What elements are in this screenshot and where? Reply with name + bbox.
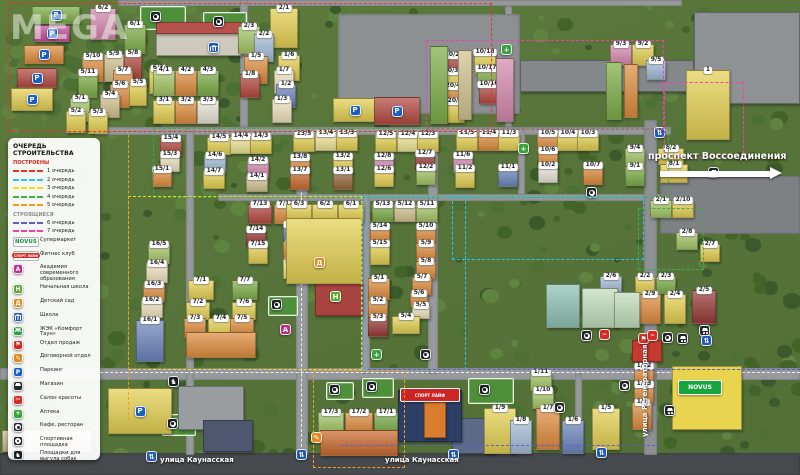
sportlife-sign: СПОРТ ЛАЙФ — [400, 388, 460, 402]
legend-amenity-label: Магазин — [40, 381, 63, 388]
building-label: 11/2 — [456, 165, 475, 172]
tree — [404, 175, 411, 181]
building[interactable]: 1/7 — [536, 408, 560, 450]
parking-icon: P — [350, 105, 361, 116]
building[interactable]: 9/5 — [646, 60, 666, 80]
phase-line-swatch — [13, 204, 43, 206]
building[interactable] — [496, 58, 514, 122]
tree — [598, 382, 606, 389]
tree — [515, 351, 529, 363]
building[interactable]: 4/3 — [197, 70, 219, 96]
tree — [783, 293, 800, 308]
building[interactable]: 2/10 — [672, 200, 694, 218]
building-label: 11/4 — [480, 130, 499, 137]
legend-amenity-icon-wrap — [13, 381, 40, 391]
legend-amenity-row: Магазин — [13, 381, 96, 393]
tree — [614, 258, 620, 263]
cafe-icon — [581, 330, 592, 341]
building[interactable]: 10/3 — [577, 133, 599, 151]
building[interactable] — [286, 218, 362, 284]
building[interactable]: 2/1 — [650, 200, 672, 218]
building-label: 1/9 — [493, 405, 508, 412]
legend-amenity-row: PПаркинг — [13, 367, 96, 379]
legend-amenity-label: Договорной отдел — [40, 353, 91, 360]
legend-phases-built: 1 очередь2 очередь3 очередь4 очередь5 оч… — [13, 167, 96, 210]
tree — [110, 349, 125, 361]
legend-title: ОЧЕРЕДЬ СТРОИТЕЛЬСТВА — [13, 143, 96, 157]
building[interactable]: 14/1 — [246, 176, 268, 192]
building-label: 5/5 — [131, 79, 146, 86]
tree — [791, 383, 800, 395]
building[interactable]: 2/8 — [676, 232, 698, 250]
building-label: 1/3 — [275, 96, 290, 103]
cafe-icon — [619, 380, 630, 391]
building-label: 16/3 — [145, 281, 164, 288]
building[interactable]: 2/1 — [270, 8, 298, 48]
entrance-icon: ⇅ — [146, 451, 157, 462]
tree — [733, 353, 743, 362]
tree — [280, 139, 288, 146]
legend-phase-row: 7 очередь — [13, 227, 96, 236]
legend-amenity-row: Кафе, ресторан — [13, 422, 96, 434]
building-label: 4/1 — [157, 67, 172, 74]
legend-amenity-icon-wrap: ♞ — [13, 450, 40, 460]
building-label: 13/8 — [291, 154, 310, 161]
tree — [544, 181, 559, 194]
building[interactable] — [320, 430, 398, 456]
tree — [579, 272, 592, 283]
building[interactable]: 5/4 — [392, 316, 420, 334]
building[interactable]: 5/3 — [368, 317, 388, 337]
building-label: 5/2 — [371, 297, 386, 304]
entrance-icon: ⇅ — [701, 335, 712, 346]
tree — [143, 210, 152, 218]
legend-amenity-row: ♞Площадки для выгула собак — [13, 450, 96, 460]
building-label: 9/5 — [649, 57, 664, 64]
building-label: 2/6 — [604, 273, 619, 280]
building-label: 7/2 — [191, 299, 206, 306]
tree — [682, 26, 690, 33]
building-label: 3/3 — [201, 97, 216, 104]
tree — [672, 351, 680, 358]
building[interactable]: 2/7 — [700, 244, 720, 262]
legend-phase-row: 1 очередь — [13, 167, 96, 176]
tree — [511, 340, 518, 346]
building-label: 1 — [704, 67, 712, 74]
legend-amenity-row: ✎Договорной отдел — [13, 353, 96, 365]
soccer-icon — [271, 299, 282, 310]
building[interactable] — [546, 284, 580, 328]
tree — [478, 211, 485, 217]
building-label: 2/10 — [674, 197, 693, 204]
building-label: 7/15 — [249, 241, 268, 248]
legend-amenity-icon-wrap: ✎ — [13, 353, 40, 363]
legend-phase-row: 2 очередь — [13, 176, 96, 185]
building[interactable]: 7/15 — [248, 244, 268, 264]
building-label: 5/7 — [415, 274, 430, 281]
building-label: 5/2 — [69, 108, 84, 115]
building[interactable]: 16/1 — [136, 320, 164, 362]
building-label: 11/1 — [499, 164, 518, 171]
legend-amenity-label: Паркинг — [40, 367, 63, 374]
soccer-icon — [366, 381, 377, 392]
building[interactable]: 5/13 — [372, 204, 394, 222]
legend-amenity-label: Салон красоты — [40, 395, 81, 402]
building[interactable] — [186, 332, 256, 358]
building-label: 5/15 — [371, 240, 390, 247]
building-label: 1/11 — [532, 369, 551, 376]
building-label: 17/2 — [350, 409, 369, 416]
building[interactable]: 7/13 — [248, 204, 272, 224]
building[interactable]: 13/1 — [333, 170, 353, 190]
building[interactable]: 4/2 — [175, 70, 197, 96]
building-label: 6/3 — [292, 201, 307, 208]
building-label: 2/3 — [659, 273, 674, 280]
tree — [665, 21, 674, 29]
building-label: 4/2 — [179, 67, 194, 74]
tree — [497, 226, 512, 239]
phase-label: 2 очередь — [47, 177, 75, 183]
tree — [533, 29, 549, 42]
building-label: 14/3 — [252, 133, 271, 140]
building[interactable] — [430, 46, 448, 124]
building-label: 2/4 — [668, 291, 683, 298]
tree — [585, 45, 591, 50]
legend-amenity-row: NOVUSСупермаркет — [13, 237, 96, 249]
school-b-icon — [208, 42, 219, 53]
building[interactable]: 1 — [686, 70, 730, 140]
legend-amenity-label: Начальная школа — [40, 284, 89, 291]
tree — [10, 46, 25, 59]
legend-amenity-label: Аптека — [40, 409, 59, 416]
legend-amenity-label: Площадки для выгула собак — [40, 450, 96, 460]
building[interactable]: 1/5 — [592, 408, 620, 450]
street-label: улица Каунасская — [385, 456, 459, 464]
tree — [552, 48, 559, 54]
building[interactable]: 11/5 — [456, 133, 478, 151]
building-label: 16/1 — [141, 317, 160, 324]
building-label: 13/5 — [295, 131, 314, 138]
building-label: 2/5 — [697, 287, 712, 294]
building-label: 10/18 — [474, 49, 497, 56]
building-label: 12/3 — [419, 131, 438, 138]
phase-line-swatch — [13, 196, 43, 198]
building[interactable]: 5/15 — [370, 243, 390, 265]
building-label: 12/6 — [375, 166, 394, 173]
tree — [108, 331, 126, 346]
tree — [564, 168, 572, 175]
building[interactable]: 1/3 — [272, 99, 292, 123]
mega-watermark: MEGA — [10, 8, 129, 48]
building[interactable]: 2/5 — [692, 290, 716, 324]
tree — [539, 246, 547, 253]
building-label: 5/10 — [417, 223, 436, 230]
building[interactable]: 13/3 — [336, 133, 358, 151]
tree — [609, 150, 622, 161]
sales-office-icon: ⚑ — [13, 340, 23, 350]
building[interactable]: 5/3 — [88, 112, 108, 134]
building-label: 11/5 — [458, 130, 477, 137]
tree — [231, 183, 237, 188]
building-label: 7/5 — [235, 315, 250, 322]
building[interactable]: 13/5 — [293, 134, 315, 152]
building-label: 13/4 — [317, 130, 336, 137]
building-label: 2/8 — [680, 229, 695, 236]
pharmacy-icon: + — [518, 143, 529, 154]
building[interactable]: 13/7 — [290, 170, 310, 190]
building[interactable]: 5/11 — [416, 204, 438, 222]
pharmacy-icon: + — [13, 409, 23, 419]
legend-amenity-icon-wrap: А — [13, 264, 40, 274]
phase-line-swatch — [13, 222, 43, 224]
building[interactable]: 7/1 — [188, 280, 214, 300]
building[interactable]: 14/7 — [203, 171, 225, 189]
tree — [754, 283, 767, 294]
building[interactable]: 3/3 — [197, 100, 219, 124]
building-label: 2/2 — [638, 273, 653, 280]
dog-park-icon: ♞ — [168, 376, 179, 387]
legend-amenities: NOVUSСупермаркетСПОРТ ЛАЙФФитнес клубААк… — [13, 237, 96, 460]
building-label: 1/2 — [279, 81, 294, 88]
building-label: 7/1 — [194, 277, 209, 284]
building-label: 7/14 — [247, 226, 266, 233]
tree — [218, 98, 230, 108]
shop-icon — [664, 405, 675, 416]
legend-amenity-icon-wrap: P — [13, 367, 40, 377]
tree — [41, 115, 48, 121]
building[interactable]: 13/4 — [315, 133, 337, 151]
phase-label: 1 очередь — [47, 168, 75, 174]
civic-building — [203, 420, 253, 452]
building-label: 5/3 — [91, 109, 106, 116]
contract-office-icon: ✎ — [311, 432, 322, 443]
tree — [394, 266, 408, 278]
parking-building[interactable]: P — [17, 68, 57, 88]
building-label: 7/13 — [251, 201, 270, 208]
shop-icon — [677, 333, 688, 344]
building-label: 5/14 — [371, 223, 390, 230]
cafe-icon — [554, 402, 565, 413]
kindergarten-icon: Д — [314, 257, 325, 268]
legend-amenity-row: ААкадемия современного образования — [13, 264, 96, 282]
primary-school-icon: Н — [330, 291, 341, 302]
building-label: 12/5 — [377, 131, 396, 138]
building[interactable]: 12/5 — [375, 134, 397, 152]
shop-icon — [13, 381, 23, 391]
phase-label: 6 очередь — [47, 220, 75, 226]
salon-icon: ✂ — [599, 329, 610, 340]
building-label: 10/5 — [539, 130, 558, 137]
building-label: 5/1 — [73, 95, 88, 102]
legend-amenity-row: +Аптека — [13, 409, 96, 421]
phase-line-swatch — [13, 230, 43, 232]
parking-icon: P — [392, 106, 403, 117]
tree — [769, 398, 780, 407]
parking-building[interactable]: P — [11, 88, 53, 111]
salon-icon: ✂ — [13, 395, 23, 405]
soccer-icon — [329, 384, 340, 395]
building-label: 10/3 — [579, 130, 598, 137]
tree — [143, 381, 150, 387]
building-label: 5/6 — [412, 290, 427, 297]
building-label: 1/8 — [514, 417, 529, 424]
building-label: 15/1 — [153, 166, 172, 173]
prospekt-street-label: проспект Воссоединения — [648, 151, 798, 162]
building-label: 10/2 — [539, 162, 558, 169]
building[interactable]: 1/8 — [240, 74, 260, 98]
novus-logo-icon: NOVUS — [13, 237, 39, 247]
legend-amenity-row: ⚑Отдел продаж — [13, 340, 96, 352]
parking-building[interactable]: P — [333, 98, 377, 122]
legend-amenity-row: Школа — [13, 312, 96, 324]
phase-label: 4 очередь — [47, 194, 75, 200]
building-label: 13/1 — [334, 167, 353, 174]
parking-icon: P — [32, 73, 43, 84]
building[interactable]: 11/4 — [478, 133, 500, 151]
building[interactable] — [458, 50, 472, 120]
cafe-icon — [662, 332, 673, 343]
zhek-icon: Ж — [13, 326, 23, 336]
phase-label: 5 очередь — [47, 202, 75, 208]
building[interactable] — [624, 64, 638, 118]
soccer-icon — [479, 384, 490, 395]
tree — [490, 201, 504, 213]
entrance-icon: ⇅ — [296, 449, 307, 460]
building[interactable]: 15/1 — [152, 169, 172, 187]
building[interactable] — [614, 292, 640, 328]
dog-park-icon: ♞ — [13, 450, 23, 460]
building-label: 5/1 — [372, 275, 387, 282]
legend-phase-row: 6 очередь — [13, 219, 96, 228]
building-label: 16/4 — [148, 260, 167, 267]
pharmacy-icon: + — [371, 349, 382, 360]
building-label: 14/5 — [210, 134, 229, 141]
building-label: 17/3 — [322, 409, 341, 416]
building[interactable]: 12/6 — [374, 169, 394, 187]
soccer-icon — [213, 16, 224, 27]
building[interactable]: 11/2 — [455, 168, 475, 188]
building[interactable]: 14/4 — [230, 136, 252, 154]
building-label: 1/6 — [566, 417, 581, 424]
building-label: 2/7 — [703, 241, 718, 248]
legend-amenity-label: Кафе, ресторан — [40, 422, 83, 429]
tree — [653, 92, 663, 101]
legend-amenity-label: ЖЭК «Комфорт Таун» — [40, 326, 96, 339]
soccer-icon — [167, 418, 178, 429]
building[interactable]: 5/5 — [129, 82, 147, 106]
building[interactable]: 11/1 — [498, 167, 518, 187]
building-label: 13/3 — [338, 130, 357, 137]
pharmacy-icon: + — [501, 44, 512, 55]
building-label: 5/11 — [418, 201, 437, 208]
arrow-tip — [770, 167, 782, 179]
academy-icon: А — [13, 264, 23, 274]
tree — [214, 240, 229, 253]
building[interactable]: 11/3 — [498, 133, 520, 151]
phase-line-swatch — [13, 179, 43, 181]
building-label: 9/3 — [614, 41, 629, 48]
building[interactable]: 12/2 — [416, 167, 436, 185]
parking-building[interactable]: P — [108, 388, 172, 434]
building[interactable]: 4/1 — [153, 70, 175, 96]
tree — [664, 437, 678, 449]
school-b-icon — [13, 312, 23, 322]
building-label: 5/6 — [113, 81, 128, 88]
building-label: 5/7 — [116, 67, 131, 74]
legend-amenity-icon-wrap: ✂ — [13, 395, 40, 405]
building-label: 7/7 — [238, 277, 253, 284]
parking-building[interactable]: P — [374, 97, 420, 125]
tree — [749, 385, 762, 396]
sportlife-logo-text: СПОРТ ЛАЙФ — [12, 253, 40, 258]
building-label: 14/4 — [232, 133, 251, 140]
building[interactable]: 14/3 — [250, 136, 272, 154]
building[interactable]: 5/2 — [66, 111, 86, 133]
legend-amenity-label: Школа — [40, 312, 58, 319]
building-label: 13/7 — [291, 167, 310, 174]
building[interactable]: 7/7 — [232, 280, 258, 300]
building-label: 2/1 — [277, 5, 292, 12]
building[interactable] — [606, 62, 622, 120]
legend-amenity-icon-wrap — [13, 436, 40, 446]
building-label: 6/1 — [128, 21, 143, 28]
novus-supermarket[interactable] — [672, 366, 742, 430]
building-label: 14/7 — [205, 168, 224, 175]
tree — [757, 429, 768, 438]
phase-label: 7 очередь — [47, 228, 75, 234]
tree — [636, 239, 643, 245]
legend-phase-row: 3 очередь — [13, 184, 96, 193]
building[interactable]: 1/8 — [510, 420, 532, 454]
building[interactable]: 1/6 — [562, 420, 584, 454]
building-label: 15/3 — [161, 151, 180, 158]
building-label: 5/11 — [79, 69, 98, 76]
building-label: 3/2 — [179, 97, 194, 104]
legend-panel: ОЧЕРЕДЬ СТРОИТЕЛЬСТВА ПОСТРОЕНЫ 1 очеред… — [8, 138, 100, 460]
building-label: 16/2 — [143, 297, 162, 304]
building[interactable] — [582, 288, 618, 328]
tree — [482, 289, 499, 304]
building[interactable]: 10/7 — [583, 165, 603, 185]
building-label: 11/3 — [500, 130, 519, 137]
legend-amenity-icon-wrap — [13, 312, 40, 322]
building-label: 5/9 — [107, 51, 122, 58]
building[interactable]: 3/2 — [175, 100, 197, 124]
tree — [12, 128, 20, 135]
tree — [311, 186, 318, 192]
building[interactable]: 9/1 — [625, 166, 645, 186]
cafe-icon — [13, 422, 23, 432]
tree — [490, 348, 503, 359]
tree — [440, 147, 446, 152]
phase-outline — [452, 196, 644, 260]
soccer-icon — [13, 436, 23, 446]
tree — [624, 224, 631, 230]
building-label: 2/2 — [257, 31, 272, 38]
building-label: 5/4 — [103, 91, 118, 98]
building[interactable]: 2/4 — [664, 294, 686, 324]
building[interactable]: 10/2 — [538, 165, 558, 183]
building-label: 2/3 — [242, 23, 257, 30]
tree — [311, 93, 318, 99]
building[interactable]: 5/12 — [394, 204, 416, 222]
tree — [702, 269, 711, 277]
building[interactable]: 10/4 — [557, 133, 579, 151]
legend-amenity-icon-wrap: Д — [13, 298, 40, 308]
contract-office-icon: ✎ — [13, 353, 23, 363]
building[interactable]: 3/1 — [153, 100, 175, 124]
legend-amenity-label: Супермаркет — [40, 237, 76, 244]
